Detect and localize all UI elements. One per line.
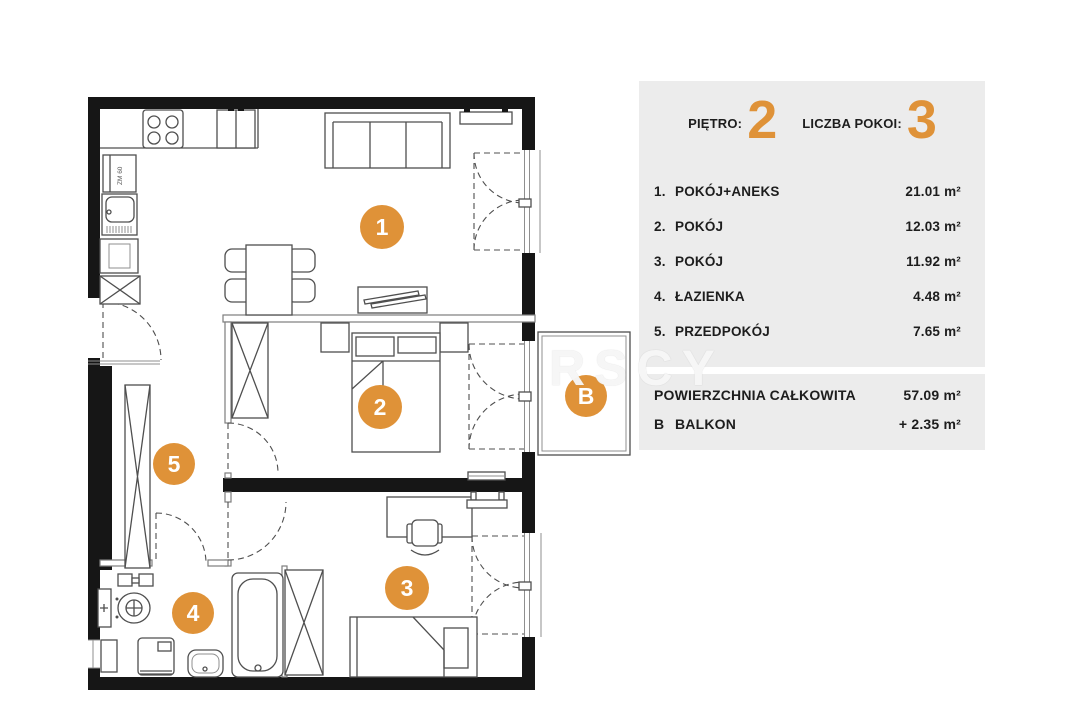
rooms-count-value: 3 [907, 101, 936, 140]
floor-value: 2 [747, 101, 776, 140]
room-name: POKÓJ+ANEKS [675, 184, 905, 199]
room-number: 2. [654, 219, 675, 234]
rooms-count-label: LICZBA POKOI: [802, 116, 902, 140]
single-bed-icon [350, 617, 477, 677]
bathroom-shaft-icon [101, 640, 117, 672]
tv-console-icon [358, 287, 427, 313]
nightstand-icon [321, 323, 349, 352]
room-number: 4. [654, 289, 675, 304]
kitchen-sink-icon [102, 194, 137, 235]
room-row: 1. POKÓJ+ANEKS 21.01 m² [654, 184, 961, 199]
sofa-icon [325, 113, 450, 168]
kitchen-cabinet-icon [100, 239, 138, 273]
room-marker-1: 1 [360, 205, 404, 249]
floor-indicator: PIĘTRO: 2 [688, 101, 776, 140]
room-marker-label: 1 [376, 214, 389, 240]
room-marker-label: 4 [187, 600, 200, 626]
entrance-door [103, 302, 161, 360]
floorplan-page: ZM 60 [0, 0, 1084, 728]
wardrobe-icon [232, 323, 268, 418]
toilet-icon [98, 589, 150, 627]
total-area-value: 57.09 m² [903, 387, 961, 403]
room-list: 1. POKÓJ+ANEKS 21.01 m² 2. POKÓJ 12.03 m… [639, 184, 985, 339]
window-room1 [474, 150, 540, 253]
room-marker-label: B [578, 383, 595, 409]
room-row: 2. POKÓJ 12.03 m² [654, 219, 961, 234]
fridge-icon [217, 106, 255, 148]
kitchen-area: ZM 60 [100, 106, 258, 304]
door-bathroom [156, 513, 206, 563]
door-room3 [228, 502, 286, 560]
dining-table-icon [225, 245, 315, 315]
room-marker-4: 4 [172, 592, 214, 634]
balcony-letter: B [654, 416, 675, 432]
room-marker-label: 2 [374, 394, 387, 420]
balcony-label: BALKON [675, 416, 899, 432]
washing-machine-icon [138, 638, 174, 675]
room-marker-5: 5 [153, 443, 195, 485]
room-name: ŁAZIENKA [675, 289, 913, 304]
room-name: PRZEDPOKÓJ [675, 324, 913, 339]
door-room2 [228, 423, 278, 473]
room-number: 5. [654, 324, 675, 339]
balcony-area-value: + 2.35 m² [899, 416, 961, 432]
kitchen-wardrobe-icon [100, 276, 140, 304]
room-name: POKÓJ [675, 219, 905, 234]
desk-chair-icon [407, 520, 442, 555]
room-row: 3. POKÓJ 11.92 m² [654, 254, 961, 269]
window-room3 [472, 533, 541, 637]
room-area: 12.03 m² [905, 219, 961, 234]
nightstand-icon [440, 323, 468, 352]
room-row: 4. ŁAZIENKA 4.48 m² [654, 289, 961, 304]
hall-area [118, 385, 153, 586]
bathroom-window [88, 640, 100, 668]
balcony-marker: B [565, 375, 607, 417]
room-name: POKÓJ [675, 254, 906, 269]
radiator-icon [468, 472, 505, 480]
room-number: 1. [654, 184, 675, 199]
wardrobe-icon [285, 570, 323, 675]
panel-header: PIĘTRO: 2 LICZBA POKOI: 3 [639, 81, 985, 140]
room-area: 21.01 m² [905, 184, 961, 199]
appliance-label: ZM 60 [117, 166, 124, 185]
wall-shelf-icon [460, 107, 512, 124]
dishwasher-icon: ZM 60 [103, 155, 136, 192]
room-number: 3. [654, 254, 675, 269]
info-panel: PIĘTRO: 2 LICZBA POKOI: 3 1. POKÓJ+ANEKS… [639, 81, 985, 367]
summary-panel: POWIERZCHNIA CAŁKOWITA 57.09 m² B BALKON… [639, 374, 985, 450]
bathtub-icon [232, 573, 283, 677]
stove-icon [143, 110, 183, 148]
total-area-row: POWIERZCHNIA CAŁKOWITA 57.09 m² [654, 387, 961, 403]
total-area-label: POWIERZCHNIA CAŁKOWITA [654, 387, 903, 403]
bathroom-sink-icon [188, 650, 223, 677]
room-area: 4.48 m² [913, 289, 961, 304]
balcony-door-room2 [469, 341, 531, 452]
room-marker-3: 3 [385, 566, 429, 610]
rooms-count-indicator: LICZBA POKOI: 3 [802, 101, 936, 140]
floor-label: PIĘTRO: [688, 116, 742, 140]
room-marker-2: 2 [358, 385, 402, 429]
room-area: 7.65 m² [913, 324, 961, 339]
balcony-row: B BALKON + 2.35 m² [654, 416, 961, 432]
room-marker-label: 3 [401, 575, 414, 601]
room-area: 11.92 m² [906, 254, 961, 269]
room-row: 5. PRZEDPOKÓJ 7.65 m² [654, 324, 961, 339]
shelf-icon [467, 492, 507, 508]
hall-wardrobe-icon [118, 385, 153, 586]
room-marker-label: 5 [168, 451, 181, 477]
